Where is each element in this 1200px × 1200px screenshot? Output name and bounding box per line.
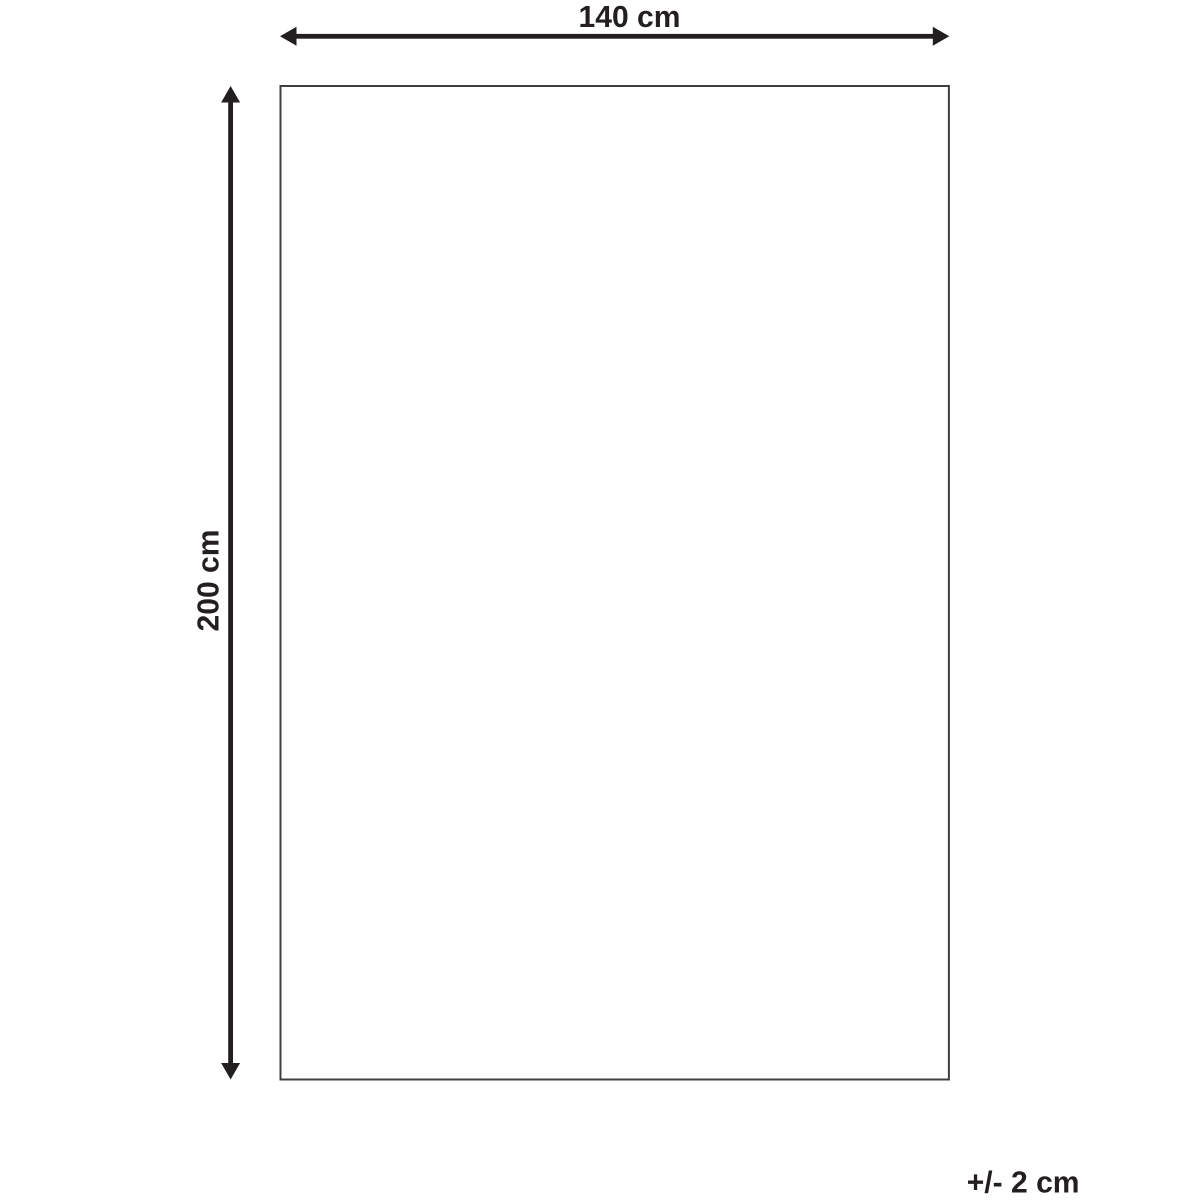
svg-text:200 cm: 200 cm [191,530,226,632]
svg-text:+/- 2 cm: +/- 2 cm [967,1165,1080,1200]
svg-text:140 cm: 140 cm [579,0,681,34]
